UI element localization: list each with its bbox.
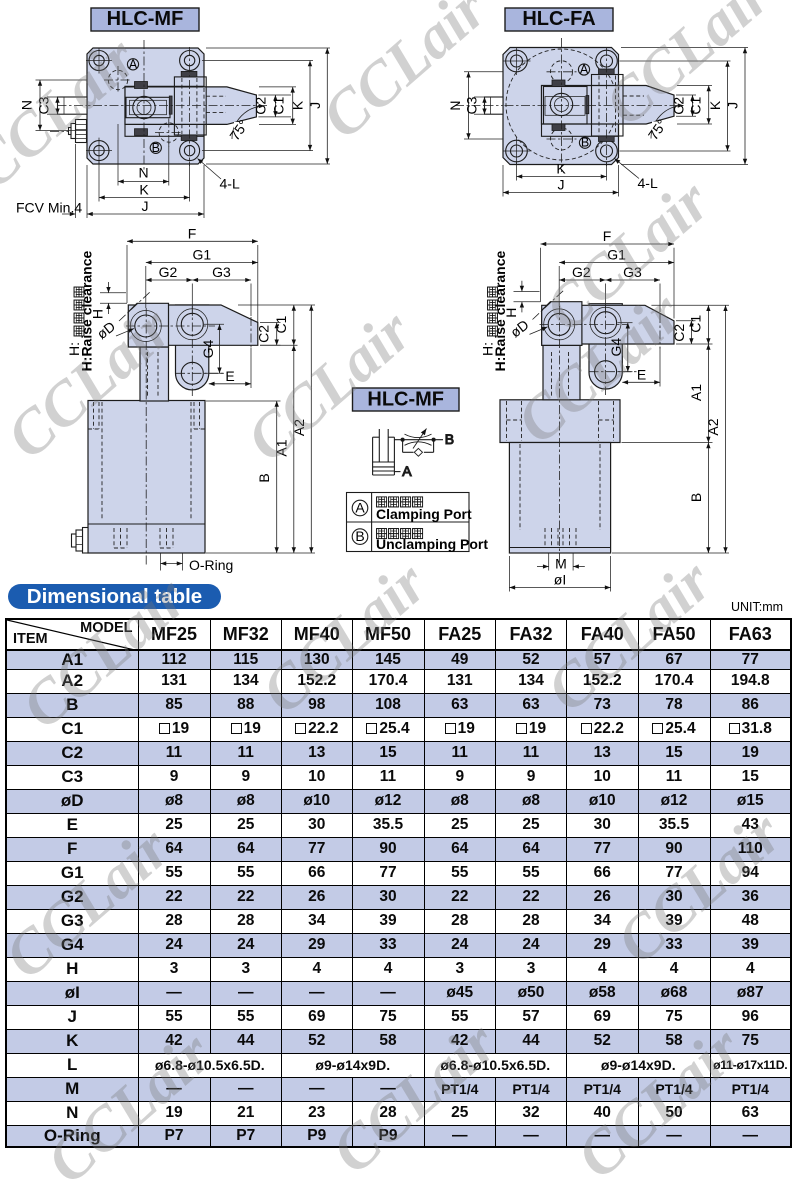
- svg-text:K: K: [139, 182, 149, 198]
- svg-text:G4: G4: [200, 339, 216, 358]
- svg-text:FCV Min.4: FCV Min.4: [16, 200, 82, 216]
- svg-text:C1: C1: [271, 97, 287, 115]
- svg-text:A1: A1: [688, 384, 704, 401]
- svg-text:B: B: [256, 473, 272, 482]
- svg-text:J: J: [558, 177, 565, 193]
- svg-text:Clamping Port: Clamping Port: [376, 506, 472, 522]
- svg-text:A: A: [402, 463, 412, 479]
- svg-text:F: F: [188, 225, 197, 241]
- svg-text:øI: øI: [554, 572, 566, 588]
- svg-text:G1: G1: [192, 247, 211, 263]
- svg-text:J: J: [142, 198, 149, 214]
- svg-text:A2: A2: [705, 418, 721, 435]
- svg-text:A: A: [355, 500, 365, 516]
- svg-text:N: N: [447, 100, 463, 110]
- svg-text:B: B: [355, 528, 364, 544]
- svg-text:B: B: [581, 136, 589, 150]
- svg-text:E: E: [225, 368, 234, 384]
- svg-text:C3: C3: [464, 96, 480, 114]
- svg-text:A: A: [580, 63, 589, 77]
- svg-text:K: K: [556, 161, 566, 177]
- svg-text:K: K: [290, 100, 306, 110]
- svg-text:G3: G3: [212, 264, 231, 280]
- svg-text:B: B: [445, 431, 454, 447]
- svg-text:N: N: [138, 165, 148, 181]
- svg-text:O-Ring: O-Ring: [189, 557, 233, 573]
- svg-text:HLC-MF: HLC-MF: [107, 8, 184, 30]
- svg-text:C2: C2: [253, 97, 269, 115]
- svg-text:B: B: [688, 493, 704, 502]
- svg-text:B: B: [152, 141, 160, 155]
- svg-text:HLC-MF: HLC-MF: [367, 389, 444, 411]
- svg-text:M: M: [555, 556, 567, 572]
- svg-text:4-L: 4-L: [220, 176, 240, 192]
- svg-text:HLC-FA: HLC-FA: [522, 8, 595, 30]
- svg-text:C2: C2: [256, 325, 272, 343]
- svg-text:C1: C1: [273, 315, 289, 333]
- svg-text:K: K: [707, 100, 723, 110]
- svg-text:øD: øD: [507, 316, 532, 340]
- svg-text:G2: G2: [159, 264, 178, 280]
- svg-text:H:: H:: [480, 342, 496, 356]
- svg-text:C1: C1: [688, 97, 704, 115]
- svg-text:J: J: [725, 102, 741, 109]
